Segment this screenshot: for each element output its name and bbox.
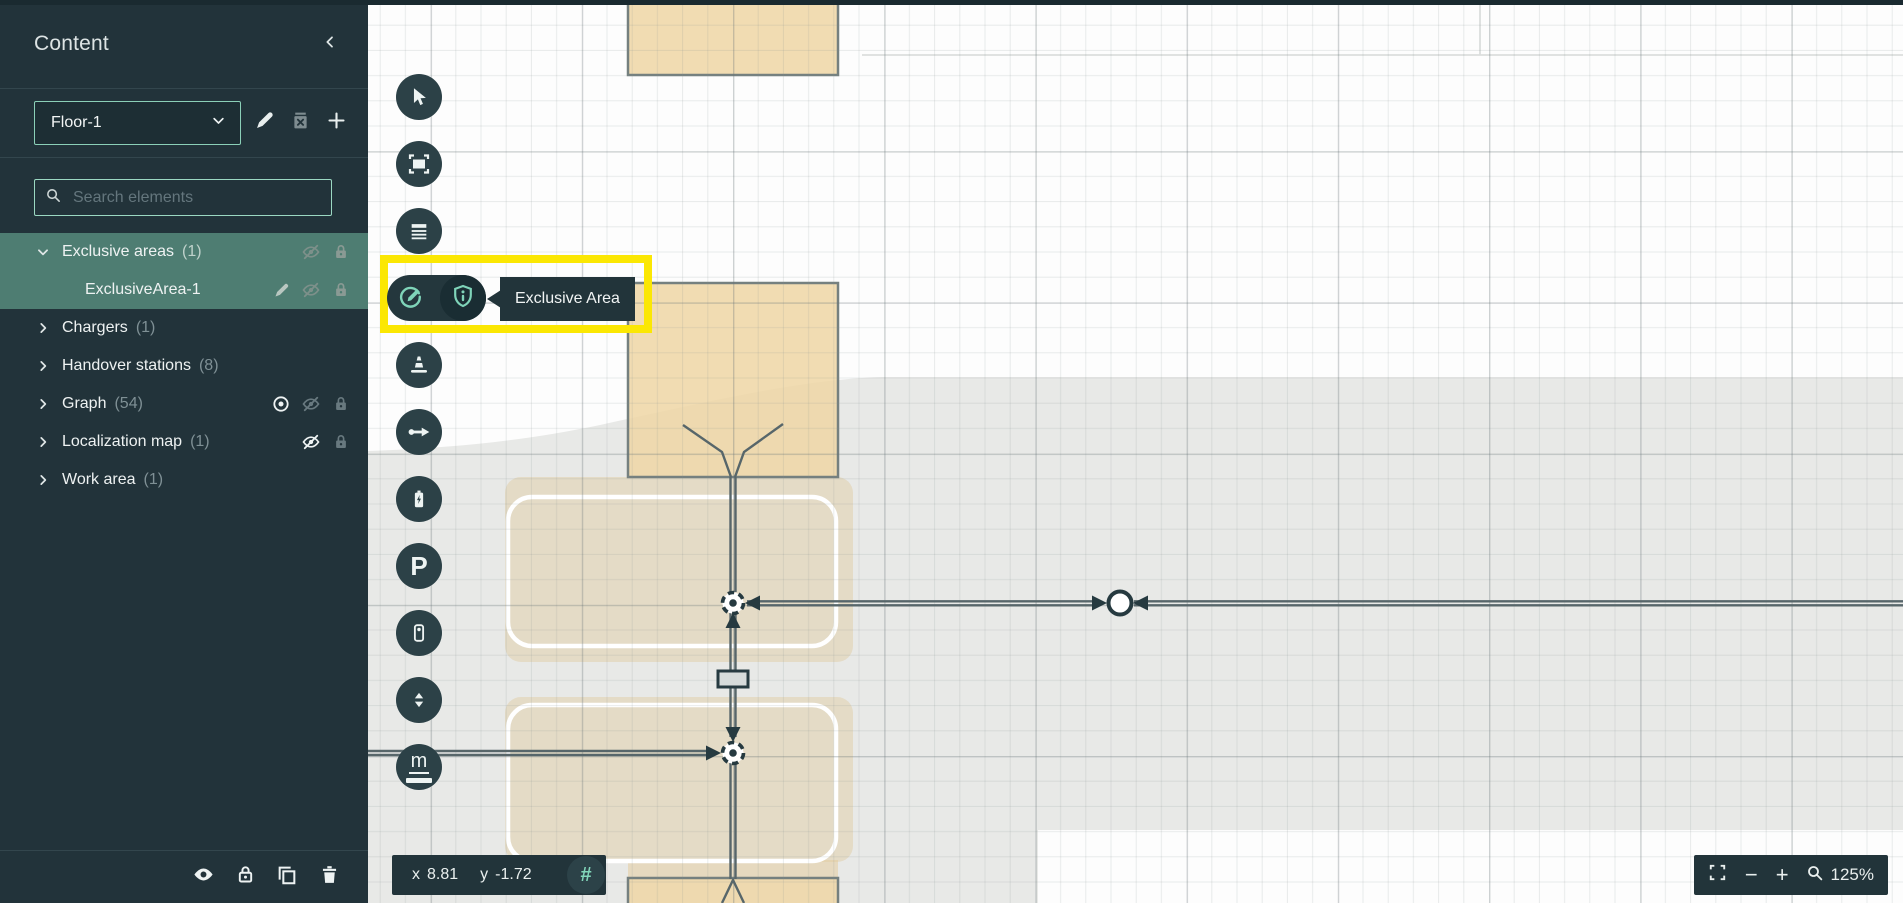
tree-row-count: (1) [144,471,164,489]
selected-group: Exclusive areas (1) ExclusiveArea-1 [0,233,368,309]
sidebar-title: Content [34,32,109,56]
eye-icon [192,863,215,891]
battery-icon [408,488,430,510]
y-coordinate-value: -1.72 [495,866,531,884]
visibility-off-icon[interactable] [296,394,326,414]
search-input[interactable] [71,188,321,208]
pencil-icon [254,110,275,136]
cursor-coordinates-bar: x 8.81 y -1.72 # [392,855,606,895]
graph-node-a[interactable] [723,593,744,614]
visibility-off-icon[interactable] [296,280,326,300]
lock-icon[interactable] [326,395,356,413]
delete-button[interactable] [316,864,342,890]
chevron-down-icon [36,245,53,259]
floor-map-scene[interactable] [368,0,1903,903]
chevron-left-icon [322,34,338,55]
visibility-off-icon[interactable] [296,432,326,452]
zoom-in-button[interactable]: + [1776,862,1789,888]
tree-row-label: Chargers [62,319,128,337]
parking-icon: P [410,553,427,579]
sidebar-header: Content [0,0,368,89]
floor-dropdown-value: Floor-1 [51,114,102,132]
plus-icon [326,110,347,136]
tree-row-count: (8) [199,357,219,375]
draw-area-icon [397,283,423,314]
zoom-level-value: 125% [1830,865,1873,885]
tooltip-arrow [487,290,501,308]
tree-row-handover-stations[interactable]: Handover stations (8) [0,347,368,385]
fit-view-icon [407,152,431,176]
tree-row-graph[interactable]: Graph (54) [0,385,368,423]
tree-row-count: (1) [136,319,156,337]
up-down-arrows-icon [409,689,429,711]
tree-row-exclusive-areas[interactable]: Exclusive areas (1) [0,233,368,271]
traffic-cone-icon [407,353,431,377]
tree-row-count: (1) [190,433,210,451]
chevron-right-icon [36,321,53,335]
chevron-right-icon [36,435,53,449]
lock-icon[interactable] [326,281,356,299]
duplicate-button[interactable] [274,864,300,890]
exclusive-area-info-button[interactable] [440,275,486,321]
top-edge-strip [0,0,1903,5]
select-tool-button[interactable] [396,74,442,120]
tree-row-work-area[interactable]: Work area (1) [0,461,368,499]
active-tool-tooltip: Exclusive Area [500,277,635,321]
graph-node-open[interactable] [1109,592,1132,615]
chevron-right-icon [36,397,53,411]
tree-row-label: Handover stations [62,357,191,375]
handover-station-marker[interactable] [718,671,748,687]
edge-tool-button[interactable] [396,409,442,455]
zoom-controls-bar: − + 125% [1694,855,1888,895]
add-floor-button[interactable] [324,110,348,136]
chevron-right-icon [36,359,53,373]
graph-node-b[interactable] [723,743,744,764]
tree-row-count: (54) [114,395,142,413]
trash-x-icon [290,110,311,136]
handover-station-icon [408,622,430,644]
floor-dropdown[interactable]: Floor-1 [34,101,241,145]
delete-floor-button[interactable] [289,110,313,136]
charger-tool-button[interactable] [396,476,442,522]
measure-icon: m [406,751,432,783]
lock-icon[interactable] [326,433,356,451]
y-coordinate-label: y [480,866,488,884]
tree-row-label: Exclusive areas [62,243,174,261]
sort-tool-button[interactable] [396,677,442,723]
collapse-sidebar-button[interactable] [322,34,338,55]
draw-area-tool-button[interactable] [387,275,433,321]
obstacle-tool-button[interactable] [396,342,442,388]
handover-tool-button[interactable] [396,610,442,656]
edit-floor-button[interactable] [253,110,277,136]
floor-editor-app: Content Floor-1 [0,0,1903,903]
tree-row-label: Work area [62,471,136,489]
target-icon[interactable] [266,394,296,414]
show-hide-button[interactable] [190,864,216,890]
trash-icon [319,864,340,890]
x-coordinate-label: x [412,866,420,884]
grid-snap-icon: # [580,864,591,887]
chevron-right-icon [36,473,53,487]
visibility-off-icon[interactable] [296,242,326,262]
search-box[interactable] [34,179,332,216]
lock-icon[interactable] [326,243,356,261]
shield-info-icon [450,283,476,314]
magnifier-icon [1806,864,1824,887]
parking-tool-button[interactable]: P [396,543,442,589]
tree-row-label: Graph [62,395,106,413]
lock-icon [235,864,256,890]
floor-map-canvas[interactable]: Exclusive Area [368,0,1903,903]
zoom-out-button[interactable]: − [1745,862,1758,888]
fullscreen-icon [1708,863,1727,887]
search-section [0,158,368,233]
x-coordinate-value: 8.81 [427,866,458,884]
fullscreen-button[interactable] [1708,863,1727,887]
tree-row-localization-map[interactable]: Localization map (1) [0,423,368,461]
snap-to-grid-button[interactable]: # [567,856,605,894]
lock-button[interactable] [232,864,258,890]
element-tree: Exclusive areas (1) ExclusiveArea-1 [0,233,368,499]
exclusive-area-tool-active [387,275,486,321]
search-icon [45,187,62,209]
content-sidebar: Content Floor-1 [0,0,368,903]
list-tool-button[interactable] [396,208,442,254]
fit-view-tool-button[interactable] [396,141,442,187]
tree-row-count: (1) [182,243,202,261]
canvas-grid [368,0,1903,903]
list-icon [408,220,430,242]
measure-tool-button[interactable]: m [396,744,442,790]
sidebar-footer [0,850,368,903]
chevron-down-icon [211,113,226,133]
tree-row-label: ExclusiveArea-1 [85,281,201,299]
floor-selector-row: Floor-1 [0,89,368,158]
tree-row-chargers[interactable]: Chargers (1) [0,309,368,347]
cursor-icon [408,86,430,108]
edge-arrow-icon [406,419,432,445]
tree-row-label: Localization map [62,433,182,451]
pencil-icon[interactable] [266,282,296,299]
copy-icon [276,864,298,891]
tree-row-exclusivearea-1[interactable]: ExclusiveArea-1 [0,271,368,309]
